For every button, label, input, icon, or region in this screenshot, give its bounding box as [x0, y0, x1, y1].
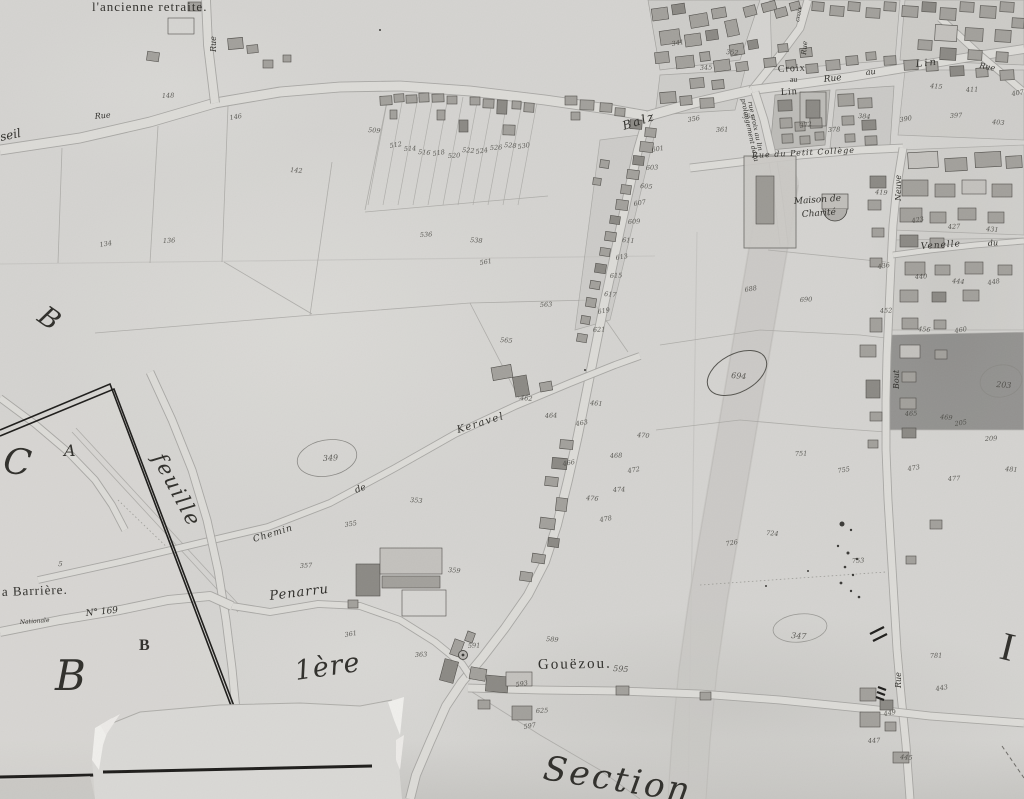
cadastral-map-page: l'ancienne retraite.RueRueseilBalzCroixa…: [0, 0, 1024, 799]
scan-grain-overlay: [0, 0, 1024, 799]
cadastral-map-image: l'ancienne retraite.RueRueseilBalzCroixa…: [0, 0, 1024, 799]
